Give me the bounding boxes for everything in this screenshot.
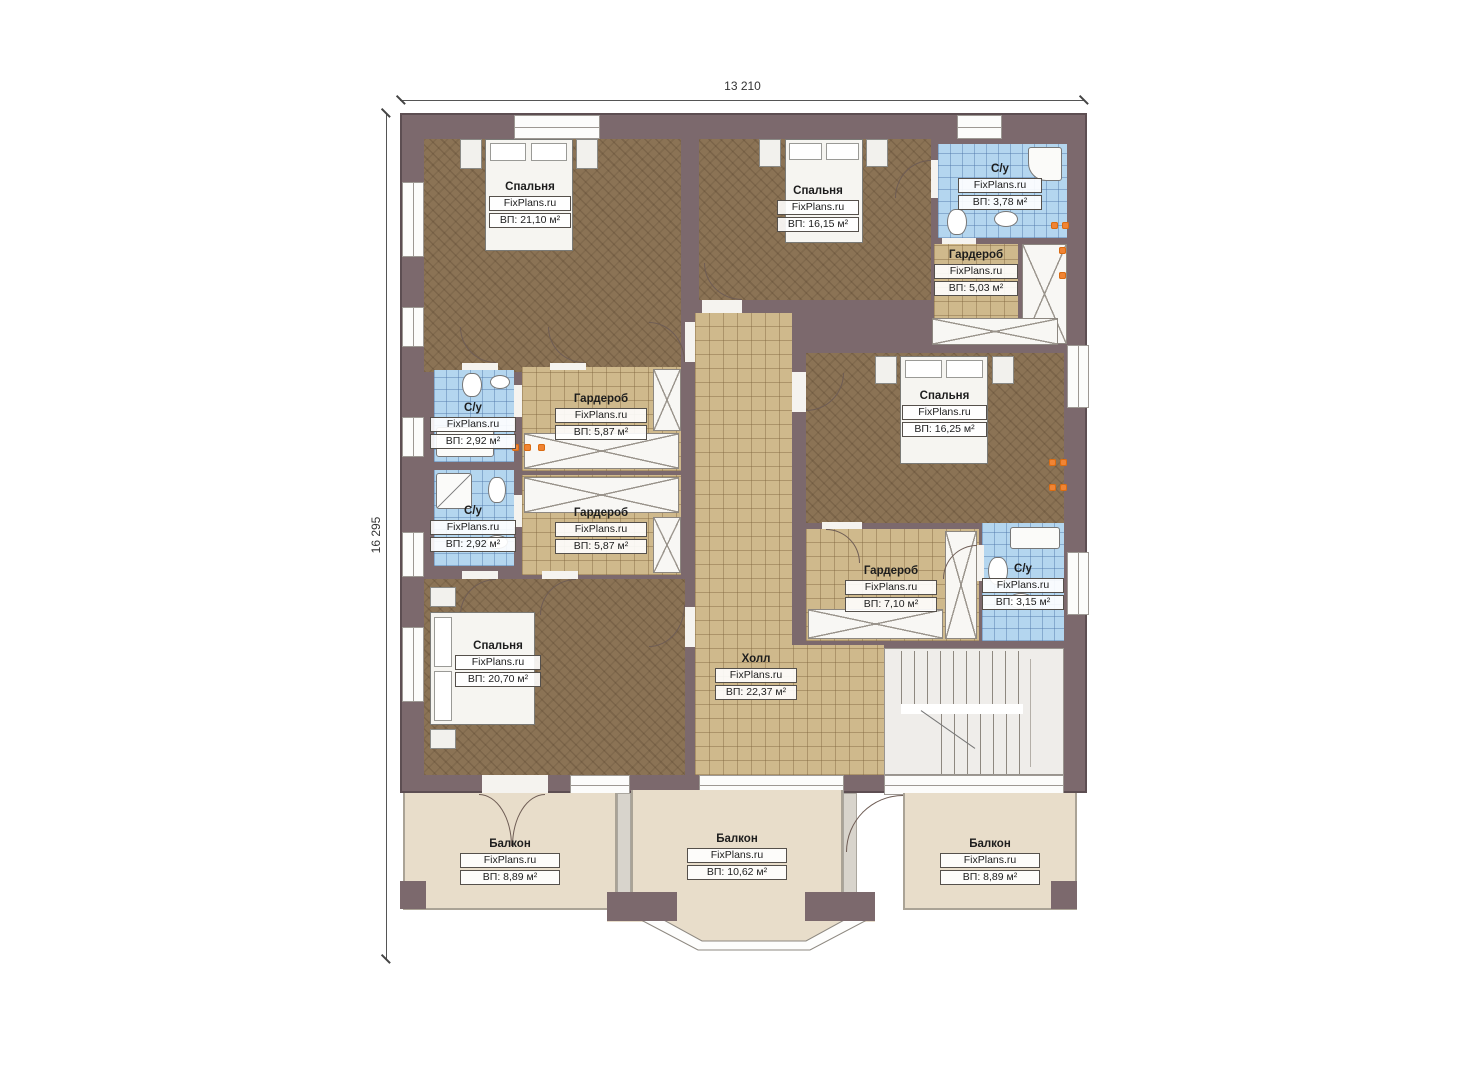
room-name: С/у	[982, 563, 1064, 576]
pillow-icon	[531, 143, 567, 161]
room-name: Гардероб	[555, 507, 647, 520]
room-label-bathroom-top-right: С/у FixPlans.ru ВП: 3,78 м²	[958, 163, 1042, 210]
dimension-width-label: 13 210	[400, 79, 1085, 93]
pillow-icon	[946, 360, 983, 378]
room-label-wardrobe-bottom: Гардероб FixPlans.ru ВП: 7,10 м²	[845, 565, 937, 612]
outlet-marker-icon	[1059, 247, 1066, 254]
nightstand-icon	[992, 356, 1014, 384]
dimension-height-label: 16 295	[369, 505, 383, 565]
nightstand-icon	[866, 139, 888, 167]
room-name: С/у	[430, 402, 516, 415]
closet-icon	[653, 369, 681, 431]
pillow-icon	[490, 143, 526, 161]
outlet-marker-icon	[1051, 222, 1058, 229]
sink-icon	[490, 375, 510, 389]
room-area: ВП: 21,10 м²	[489, 213, 571, 228]
bay-window	[598, 872, 908, 972]
room-name: Балкон	[460, 838, 560, 851]
room-area: ВП: 7,10 м²	[845, 597, 937, 612]
pillow-icon	[434, 671, 452, 721]
pillow-icon	[434, 617, 452, 667]
room-area: ВП: 8,89 м²	[940, 870, 1040, 885]
toilet-icon	[462, 373, 482, 397]
pillow-icon	[789, 143, 822, 160]
window	[402, 182, 424, 257]
watermark: FixPlans.ru	[715, 668, 797, 683]
stair-stringer-line	[1030, 659, 1031, 767]
watermark: FixPlans.ru	[940, 853, 1040, 868]
balcony-pier	[1051, 881, 1077, 909]
room-label-bathroom-left-lower: С/у FixPlans.ru ВП: 2,92 м²	[430, 505, 516, 552]
watermark: FixPlans.ru	[555, 408, 647, 423]
room-name: С/у	[430, 505, 516, 518]
room-area: ВП: 5,03 м²	[934, 281, 1018, 296]
room-label-wardrobe-right: Гардероб FixPlans.ru ВП: 5,03 м²	[934, 249, 1018, 296]
room-label-balcony-right: Балкон FixPlans.ru ВП: 8,89 м²	[940, 838, 1040, 885]
room-area: ВП: 22,37 м²	[715, 685, 797, 700]
door-opening	[792, 372, 806, 412]
door-opening	[931, 160, 938, 198]
door-opening	[462, 363, 498, 370]
watermark: FixPlans.ru	[555, 522, 647, 537]
room-name: Спальня	[777, 185, 859, 198]
watermark: FixPlans.ru	[489, 196, 571, 211]
room-name: Спальня	[455, 640, 541, 653]
outlet-marker-icon	[1060, 459, 1067, 466]
door-opening	[462, 571, 498, 579]
room-area: ВП: 20,70 м²	[455, 672, 541, 687]
staircase	[884, 648, 1064, 775]
watermark: FixPlans.ru	[958, 178, 1042, 193]
building-outline: Спальня FixPlans.ru ВП: 21,10 м² Спальня…	[400, 113, 1087, 793]
shower-icon	[436, 473, 472, 509]
closet-icon	[653, 517, 681, 573]
nightstand-icon	[430, 587, 456, 607]
room-area: ВП: 16,15 м²	[777, 217, 859, 232]
outlet-marker-icon	[524, 444, 531, 451]
room-area: ВП: 2,92 м²	[430, 537, 516, 552]
floor-plan-canvas: 13 210 16 295	[0, 0, 1474, 1080]
watermark: FixPlans.ru	[430, 520, 516, 535]
door-opening	[542, 571, 578, 579]
room-name: Гардероб	[934, 249, 1018, 262]
room-label-bedroom-top-left: Спальня FixPlans.ru ВП: 21,10 м²	[489, 181, 571, 228]
pillow-icon	[826, 143, 859, 160]
door-opening	[685, 607, 695, 647]
room-area: ВП: 3,15 м²	[982, 595, 1064, 610]
watermark: FixPlans.ru	[934, 264, 1018, 279]
nightstand-icon	[759, 139, 781, 167]
watermark: FixPlans.ru	[687, 848, 787, 863]
outlet-marker-icon	[1049, 459, 1056, 466]
window	[402, 532, 424, 577]
room-name: Балкон	[687, 833, 787, 846]
watermark: FixPlans.ru	[460, 853, 560, 868]
room-label-bedroom-top-middle: Спальня FixPlans.ru ВП: 16,15 м²	[777, 185, 859, 232]
window	[957, 115, 1002, 139]
watermark: FixPlans.ru	[777, 200, 859, 215]
room-label-wardrobe-lower: Гардероб FixPlans.ru ВП: 5,87 м²	[555, 507, 647, 554]
outlet-marker-icon	[1059, 272, 1066, 279]
door-opening	[822, 522, 862, 529]
bathtub-icon	[1010, 527, 1060, 549]
door-opening	[685, 322, 695, 362]
room-area: ВП: 3,78 м²	[958, 195, 1042, 210]
nightstand-icon	[576, 139, 598, 169]
balcony-door-opening	[482, 775, 548, 795]
outlet-marker-icon	[1060, 484, 1067, 491]
closet-icon	[808, 609, 943, 639]
room-area: ВП: 2,92 м²	[430, 434, 516, 449]
window	[402, 307, 424, 347]
stair-landing	[901, 704, 1023, 714]
outlet-marker-icon	[1062, 222, 1069, 229]
room-label-balcony-center: Балкон FixPlans.ru ВП: 10,62 м²	[687, 833, 787, 880]
watermark: FixPlans.ru	[982, 578, 1064, 593]
room-area: ВП: 5,87 м²	[555, 539, 647, 554]
toilet-icon	[947, 209, 967, 235]
balcony-pier	[400, 881, 426, 909]
nightstand-icon	[460, 139, 482, 169]
watermark: FixPlans.ru	[455, 655, 541, 670]
nightstand-icon	[875, 356, 897, 384]
pillow-icon	[905, 360, 942, 378]
window	[570, 775, 630, 795]
watermark: FixPlans.ru	[902, 405, 987, 420]
room-name: Холл	[715, 653, 797, 666]
dimension-width-line	[400, 100, 1085, 101]
nightstand-icon	[430, 729, 456, 749]
door-opening	[550, 363, 586, 370]
stair-flight-upper	[901, 651, 1023, 704]
door-opening	[702, 300, 742, 313]
room-area: ВП: 16,25 м²	[902, 422, 987, 437]
room-name: Спальня	[902, 390, 987, 403]
room-area: ВП: 5,87 м²	[555, 425, 647, 440]
room-label-bedroom-bottom-left: Спальня FixPlans.ru ВП: 20,70 м²	[455, 640, 541, 687]
window	[1067, 552, 1089, 615]
room-label-bedroom-right: Спальня FixPlans.ru ВП: 16,25 м²	[902, 390, 987, 437]
room-label-balcony-left: Балкон FixPlans.ru ВП: 8,89 м²	[460, 838, 560, 885]
stair-flight-lower	[941, 714, 1023, 774]
outlet-marker-icon	[1049, 484, 1056, 491]
window	[514, 115, 600, 139]
room-name: Гардероб	[555, 393, 647, 406]
window	[1067, 345, 1089, 408]
window	[402, 627, 424, 702]
window	[884, 775, 1064, 795]
dimension-height-line	[386, 113, 387, 960]
door-opening	[942, 238, 976, 244]
room-label-bathroom-left-upper: С/у FixPlans.ru ВП: 2,92 м²	[430, 402, 516, 449]
room-name: Спальня	[489, 181, 571, 194]
window	[402, 417, 424, 457]
watermark: FixPlans.ru	[430, 417, 516, 432]
watermark: FixPlans.ru	[845, 580, 937, 595]
room-name: С/у	[958, 163, 1042, 176]
room-name: Балкон	[940, 838, 1040, 851]
outlet-marker-icon	[538, 444, 545, 451]
closet-icon	[932, 318, 1058, 345]
sink-icon	[994, 211, 1018, 227]
room-label-bathroom-bottom-right: С/у FixPlans.ru ВП: 3,15 м²	[982, 563, 1064, 610]
room-area: ВП: 8,89 м²	[460, 870, 560, 885]
room-label-wardrobe-upper: Гардероб FixPlans.ru ВП: 5,87 м²	[555, 393, 647, 440]
room-name: Гардероб	[845, 565, 937, 578]
room-label-hall: Холл FixPlans.ru ВП: 22,37 м²	[715, 653, 797, 700]
toilet-icon	[488, 477, 506, 503]
room-area: ВП: 10,62 м²	[687, 865, 787, 880]
